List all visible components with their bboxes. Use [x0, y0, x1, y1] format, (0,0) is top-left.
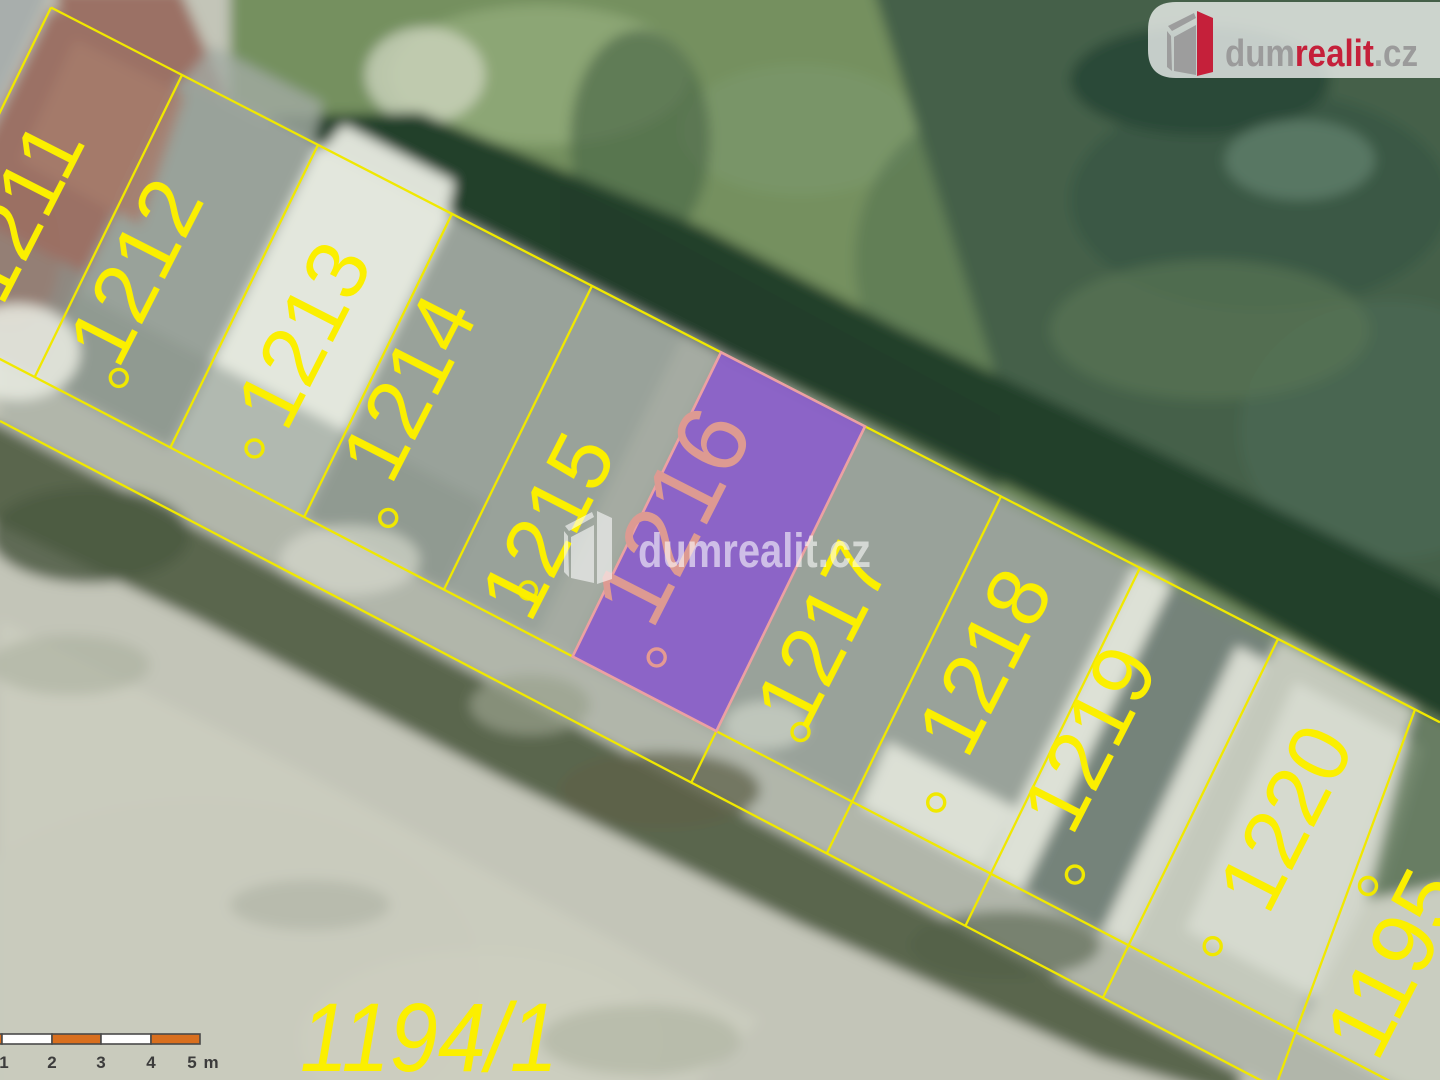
svg-text:3: 3: [96, 1053, 105, 1072]
svg-text:1: 1: [0, 1053, 9, 1072]
svg-text:4: 4: [146, 1053, 156, 1072]
svg-text:dumrealit.cz: dumrealit.cz: [638, 525, 871, 578]
svg-text:2: 2: [47, 1053, 56, 1072]
svg-text:m: m: [203, 1053, 218, 1072]
svg-text:dumrealit.cz: dumrealit.cz: [1225, 33, 1418, 75]
svg-text:5: 5: [187, 1053, 196, 1072]
svg-text:1194/1: 1194/1: [300, 983, 558, 1080]
